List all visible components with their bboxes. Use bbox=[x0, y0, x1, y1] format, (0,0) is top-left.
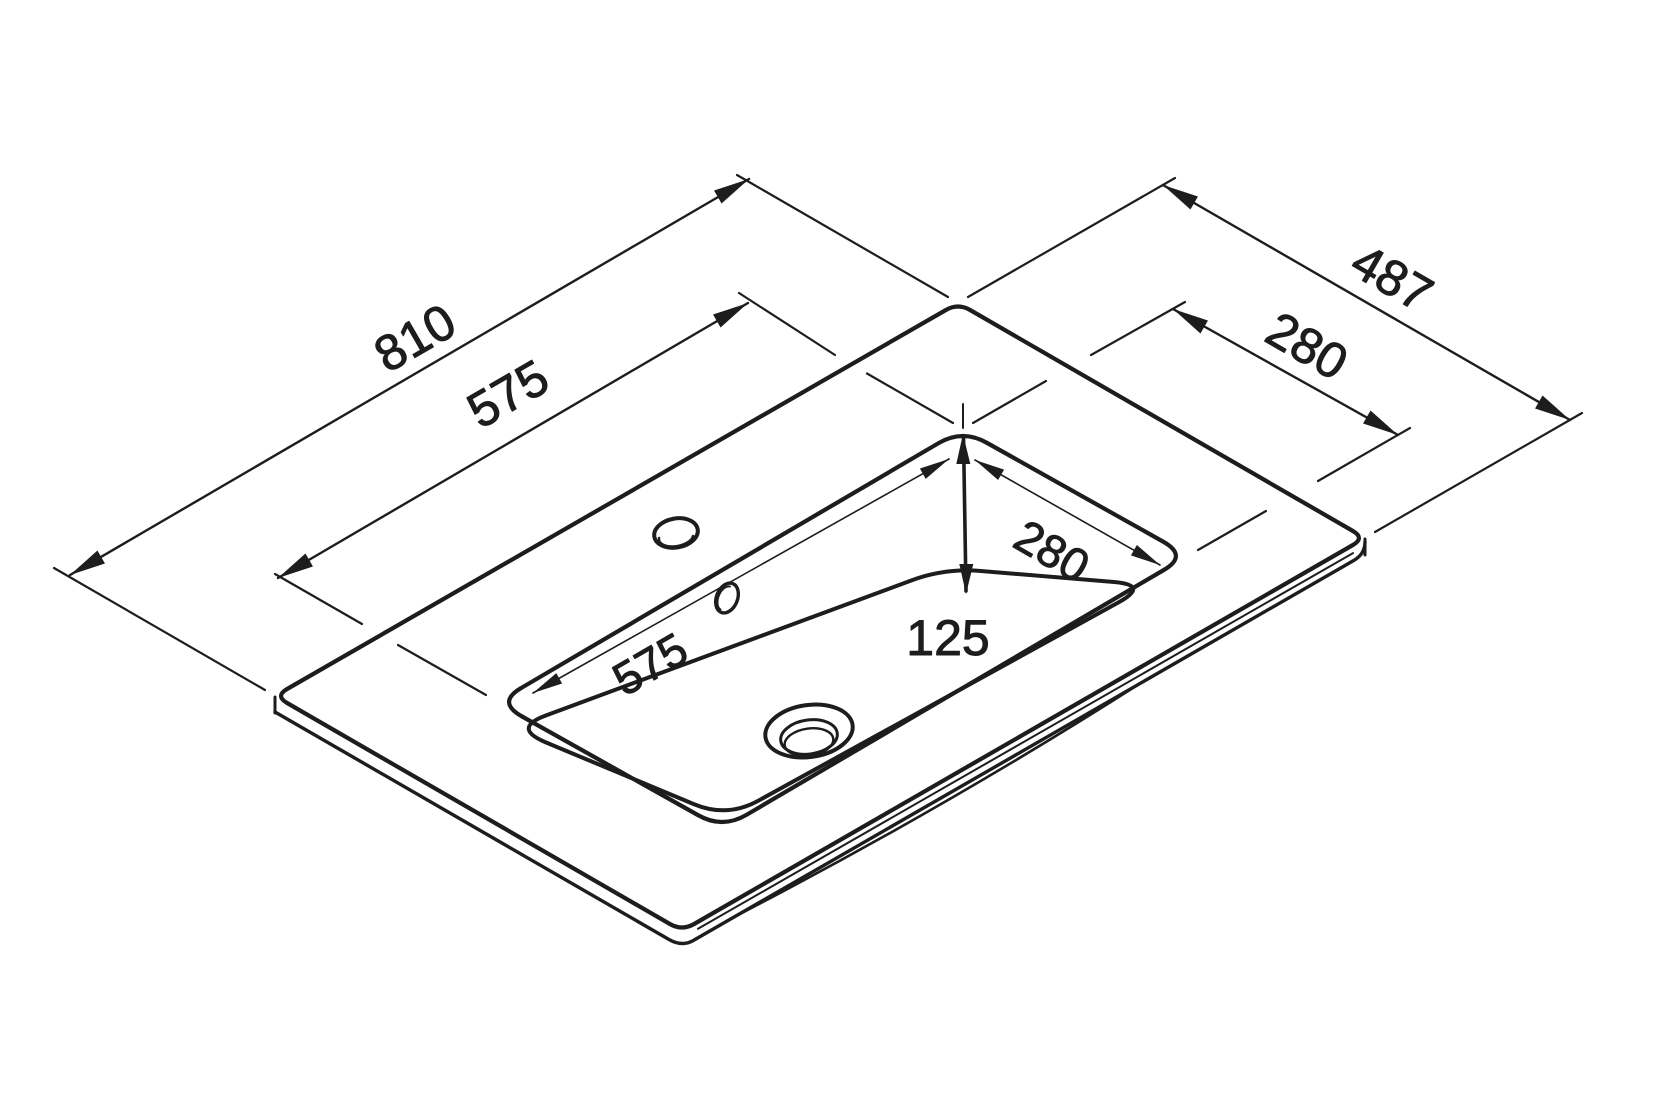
canvas-background bbox=[0, 0, 1680, 1120]
isometric-dimension-drawing: 810 575 487 bbox=[0, 0, 1680, 1120]
dim-label-basin-depth: 125 bbox=[906, 610, 989, 666]
